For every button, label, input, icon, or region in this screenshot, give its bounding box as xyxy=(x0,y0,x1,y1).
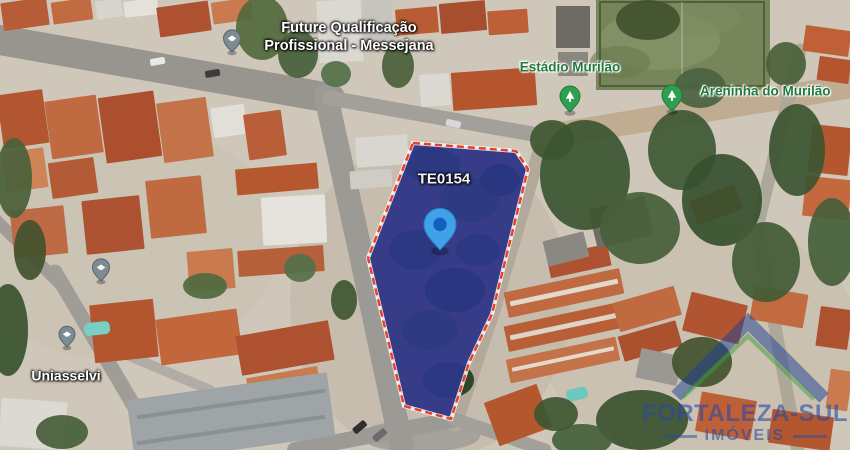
building-roof xyxy=(81,195,144,255)
tree-cluster xyxy=(672,337,732,387)
building-roof xyxy=(439,0,487,34)
building-roof xyxy=(145,175,207,239)
building-roof xyxy=(487,9,529,36)
tree-cluster xyxy=(766,42,806,86)
tree-cluster xyxy=(616,0,680,40)
label-future-qualificacao[interactable]: Future QualificaçãoProfissional - Messej… xyxy=(264,19,433,55)
tree-cluster xyxy=(36,415,88,449)
label-areninha-do-murilao[interactable]: Areninha do Murilão xyxy=(700,84,831,101)
tree-icon xyxy=(671,98,673,101)
building-roof xyxy=(815,306,850,350)
building-roof xyxy=(210,104,248,138)
tree-cluster xyxy=(14,220,46,280)
property-pin-dot xyxy=(433,218,446,231)
map-canvas[interactable] xyxy=(0,0,850,450)
tree-icon xyxy=(569,99,571,102)
graduation-cap-icon xyxy=(230,38,234,40)
graduation-cap-icon xyxy=(65,334,69,336)
building-roof xyxy=(243,110,287,161)
tree-cluster xyxy=(331,280,357,320)
building-roof xyxy=(48,157,99,199)
building-roof xyxy=(261,194,327,245)
tree-cluster xyxy=(321,61,351,87)
building-roof xyxy=(355,134,409,168)
building-roof xyxy=(419,73,451,107)
satellite-map-viewport[interactable]: Future QualificaçãoProfissional - Messej… xyxy=(0,0,850,450)
tree-cluster xyxy=(284,254,316,282)
building-roof xyxy=(98,90,163,163)
label-uniasselvi[interactable]: Uniasselvi xyxy=(31,367,100,385)
label-lot-code[interactable]: TE0154 xyxy=(418,171,471,190)
building-roof xyxy=(156,97,214,163)
building-roof xyxy=(349,169,392,190)
tree-cluster xyxy=(600,192,680,264)
tree-cluster xyxy=(732,222,800,302)
building-roof xyxy=(0,89,50,149)
label-estadio-murilao[interactable]: Estádio Murilão xyxy=(520,60,621,77)
building-roof xyxy=(44,95,104,160)
tree-cluster xyxy=(183,273,227,299)
building-roof xyxy=(556,6,590,48)
graduation-cap-icon xyxy=(99,267,103,269)
building-roof xyxy=(816,56,850,84)
tree-cluster xyxy=(769,104,825,196)
tree-cluster xyxy=(534,397,578,431)
